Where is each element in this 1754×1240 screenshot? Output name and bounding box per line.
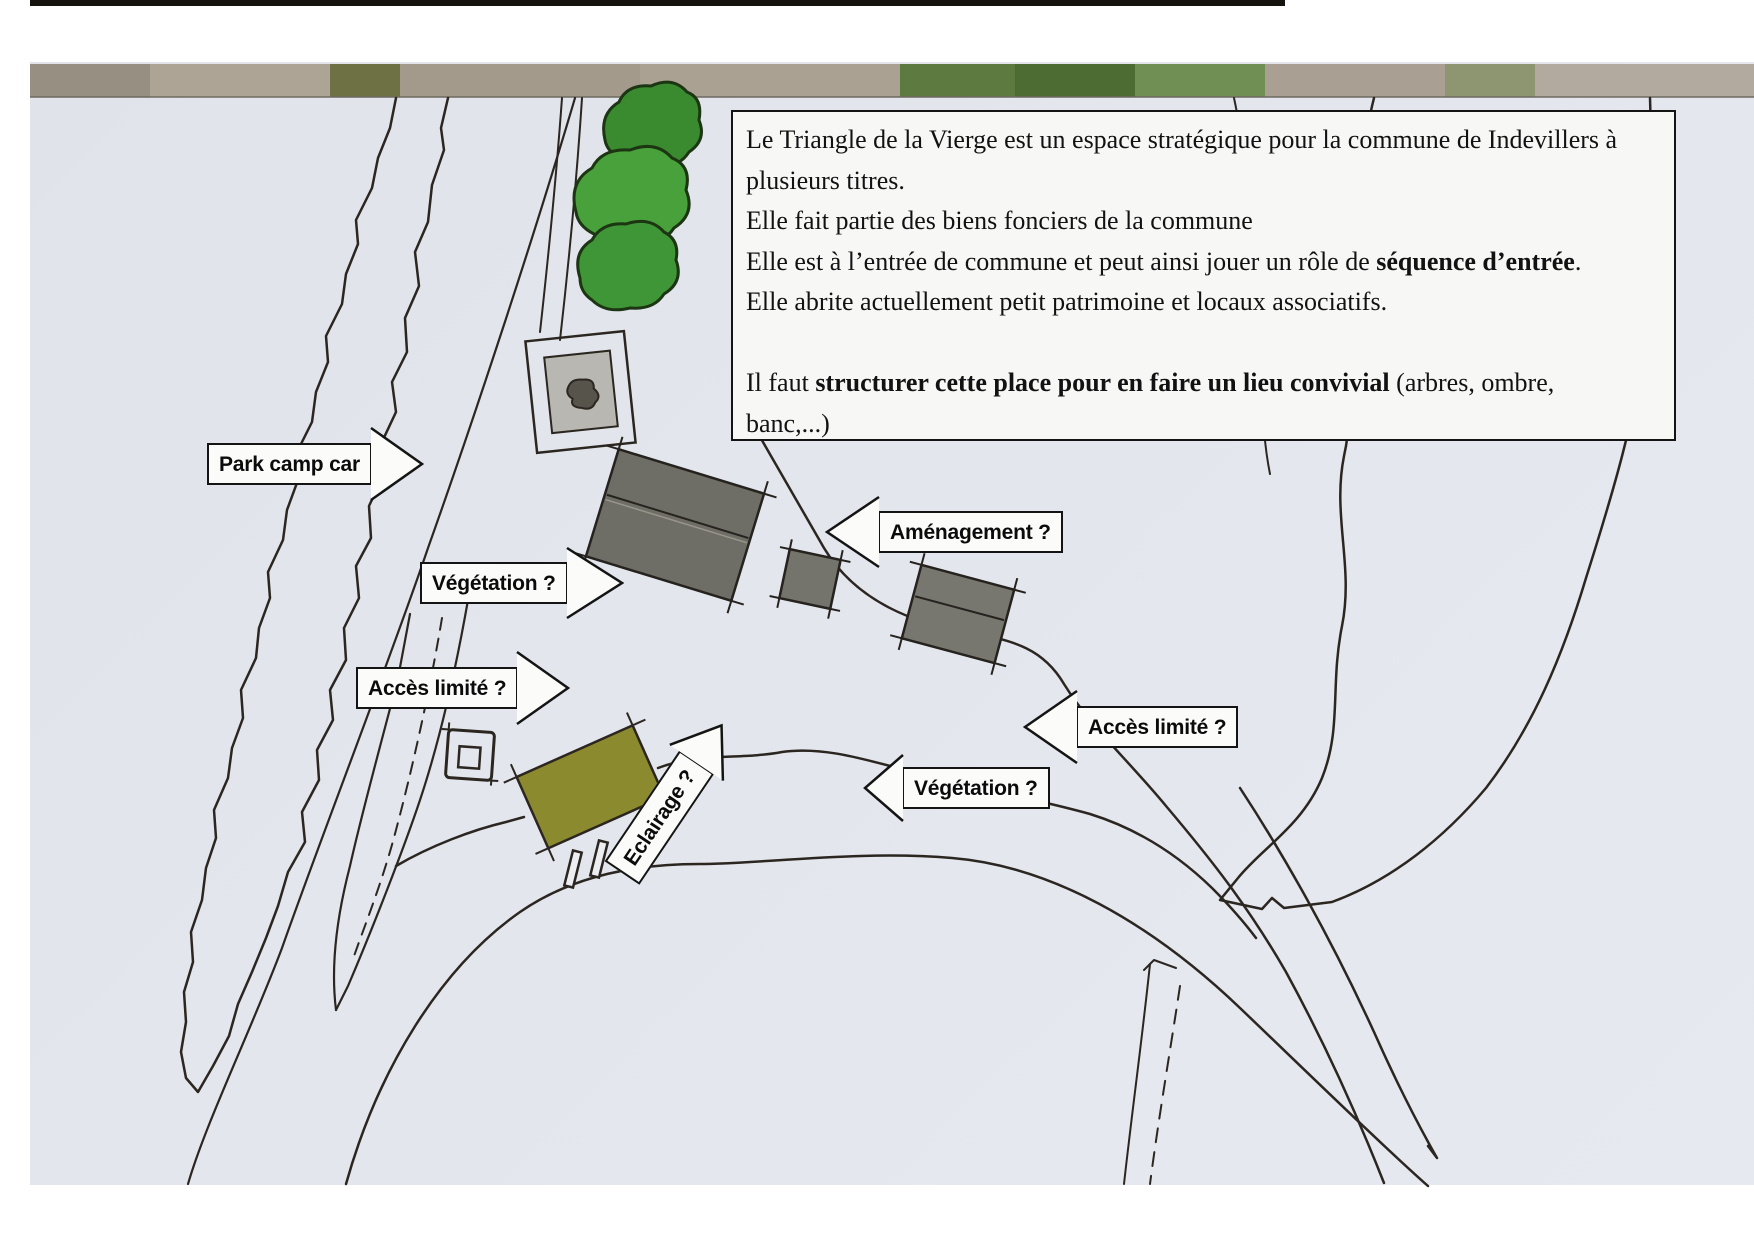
photo-patch [330, 64, 400, 97]
arrowhead-right-icon [566, 544, 624, 622]
label-text-box: Accès limité ? [356, 667, 518, 709]
info-text: banc,...) [746, 409, 830, 438]
info-text: plusieurs titres. [746, 166, 905, 195]
monument-square [438, 722, 502, 786]
info-text: Elle abrite actuellement petit patrimoin… [746, 287, 1387, 316]
bottom-path-dashed-line [1150, 986, 1180, 1184]
info-box: Le Triangle de la Vierge est un espace s… [731, 110, 1676, 441]
info-box-line: Elle fait partie des biens fonciers de l… [746, 201, 1668, 242]
label-text-box: Aménagement ? [878, 511, 1063, 553]
left-hedge-outline [181, 98, 448, 1092]
info-box-line: Il faut structurer cette place pour en f… [746, 363, 1668, 404]
label-amenagement: Aménagement ? [824, 494, 1063, 570]
arrowhead-left-icon [862, 752, 904, 824]
info-text: Le Triangle de la Vierge est un espace s… [746, 125, 1617, 154]
aerial-photo-strip [30, 64, 1754, 97]
label-text-box: Végétation ? [902, 767, 1050, 809]
info-text: Il faut [746, 368, 815, 397]
info-box-line: Le Triangle de la Vierge est un espace s… [746, 120, 1668, 161]
info-text-bold: séquence d’entrée [1376, 247, 1575, 276]
chapel [525, 331, 635, 453]
tree-trunk-line-1 [540, 98, 562, 332]
scanned-site-plan-page: Le Triangle de la Vierge est un espace s… [0, 0, 1754, 1240]
info-text-bold: structurer cette place pour en faire un … [815, 368, 1389, 397]
info-box-line: Elle abrite actuellement petit patrimoin… [746, 282, 1668, 323]
arrowhead-right-icon [370, 424, 424, 504]
info-box-text: Le Triangle de la Vierge est un espace s… [746, 120, 1668, 441]
photo-patch [1445, 64, 1535, 97]
arrowhead-left-icon [824, 494, 880, 570]
photo-patch [1535, 64, 1754, 97]
label-text-box: Accès limité ? [1076, 706, 1238, 748]
label-text-box: Park camp car [207, 443, 372, 485]
arrowhead-right-icon [516, 648, 570, 728]
photo-patch [900, 64, 1015, 97]
monument-outer [445, 729, 494, 780]
label-vegetation-left: Végétation ? [420, 544, 624, 622]
info-text: Elle fait partie des biens fonciers de l… [746, 206, 1253, 235]
label-acces-limite-right: Accès limité ? [1022, 688, 1238, 766]
label-text-box: Végétation ? [420, 562, 568, 604]
photo-patch [150, 64, 330, 97]
photo-patch [1265, 64, 1445, 97]
photo-patch [400, 64, 640, 97]
label-acces-limite-left: Accès limité ? [356, 648, 570, 728]
info-box-line: plusieurs titres. [746, 161, 1668, 202]
info-text: Elle est à l’entrée de commune et peut a… [746, 247, 1376, 276]
label-park-camp-car: Park camp car [207, 424, 424, 504]
left-road-line [188, 98, 575, 1184]
photo-patch [1135, 64, 1265, 97]
info-text: (arbres, ombre, [1390, 368, 1555, 397]
photo-patch [1015, 64, 1135, 97]
building-medium-roof [902, 565, 1014, 663]
info-text: . [1575, 247, 1582, 276]
monument-inner [458, 746, 480, 768]
arrowhead-left-icon [1022, 688, 1078, 766]
place-left-boundary [396, 817, 524, 866]
info-box-line: Elle est à l’entrée de commune et peut a… [746, 242, 1668, 283]
info-box-line: banc,...) [746, 404, 1668, 442]
info-box-line [746, 323, 1668, 364]
photo-patch [30, 64, 150, 97]
bottom-path-line [1124, 964, 1150, 1184]
